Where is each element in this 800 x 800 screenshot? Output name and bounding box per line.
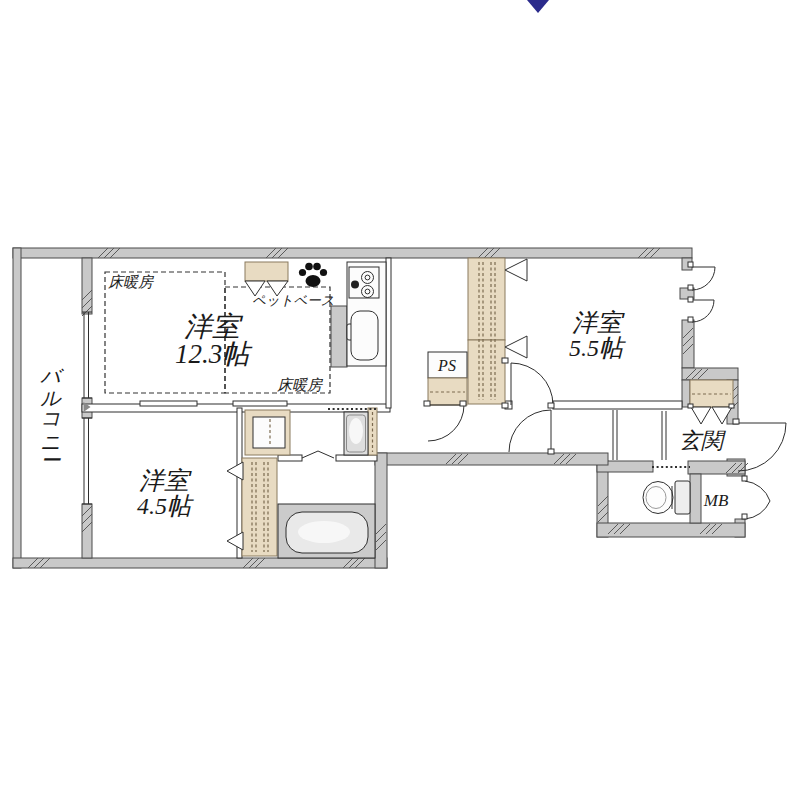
- closet-upper: [468, 258, 505, 340]
- floor-heating-label-2: 床暖房: [277, 377, 324, 393]
- toilet: [643, 481, 690, 514]
- room2-size-label: 4.5帖: [137, 493, 194, 519]
- room3-size-label: 5.5帖: [569, 335, 626, 361]
- room3-name-label: 洋室: [572, 309, 625, 336]
- pet-base-box: [245, 262, 288, 281]
- room1-size-label: 12.3帖: [175, 339, 253, 369]
- door-arc-room3-entry: [511, 363, 553, 405]
- meter-box-label: MB: [703, 491, 729, 510]
- door-arc-room3-a: [692, 267, 715, 290]
- stove-knob: [351, 281, 359, 289]
- balcony-label: バルコニー: [36, 354, 62, 461]
- closet-room2: [242, 458, 277, 556]
- north-arrow-icon: [527, 0, 549, 13]
- toilet-tank: [675, 481, 690, 514]
- kitchen: [347, 262, 386, 366]
- room2-name-label: 洋室: [139, 467, 192, 494]
- pet-base-label: ペットベース: [252, 293, 335, 308]
- closet-lower: [468, 340, 505, 404]
- door-arc-meter-box: [745, 481, 770, 519]
- floorplan-canvas: 洋室 12.3帖 洋室 4.5帖 洋室 5.5帖 バルコニー 玄関 PS MB …: [0, 0, 800, 800]
- washbasin: [344, 412, 368, 455]
- kitchen-sink-icon: [351, 311, 378, 360]
- bathroom: [278, 504, 375, 558]
- door-arc-hallway: [509, 410, 551, 452]
- entrance-label: 玄関: [679, 428, 726, 453]
- floorplan-drawing: 洋室 12.3帖 洋室 4.5帖 洋室 5.5帖 バルコニー 玄関 PS MB …: [0, 0, 800, 800]
- door-arc-washroom: [428, 405, 464, 441]
- floor-heating-label-1: 床暖房: [108, 274, 155, 290]
- paw-icon: [299, 263, 327, 287]
- pipe-space-label: PS: [437, 357, 456, 374]
- room1-name-label: 洋室: [184, 311, 244, 342]
- door-arc-room3-b: [692, 300, 714, 322]
